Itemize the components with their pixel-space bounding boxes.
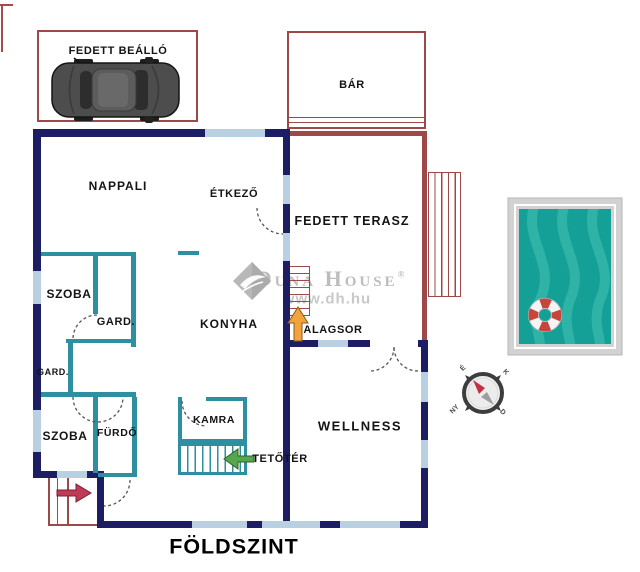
room1-door-arc [73,315,97,339]
wellness-right-wall [421,468,428,528]
wellness-door-arc [394,347,418,371]
floor-plan: Duna House® www.dh.hu [0,0,640,572]
wall-bottom [97,521,192,528]
room1-label: SZOBA [47,287,92,301]
compass-needle-south [481,392,494,405]
compass-icon [464,374,502,412]
page-title: FÖLDSZINT [169,535,299,560]
wall-bottom [320,521,340,528]
exterior-stairs [428,172,461,297]
kitchen-label: KONYHA [200,317,258,331]
living-room-label: NAPPALI [89,179,148,193]
watermark-brand-text: Duna House [256,266,398,291]
entry-porch-rail [48,478,50,526]
pantry-wall [243,397,247,443]
kitchen-counter [178,251,199,255]
window [421,440,428,468]
watermark-brand: Duna House® [256,266,405,292]
basement-stairs [288,266,310,316]
entry-porch-edge [48,524,98,526]
wall-top [37,129,205,137]
bathroom-label: FÜRDŐ [97,427,137,439]
window [262,521,320,528]
interior-wall [41,252,136,256]
interior-wall [41,392,136,397]
wardrobe2-label: GARD. [37,367,69,377]
window [57,471,87,478]
carport-outline [37,30,198,122]
interior-wall [93,252,98,314]
wellness-top-wall [348,340,370,347]
interior-wall [66,339,136,343]
window [33,271,41,304]
bar-counter-line [289,122,424,123]
dining-room-label: ÉTKEZŐ [210,188,258,200]
bar-label: BÁR [339,79,365,91]
window [33,410,41,452]
entrance-door-arc [104,480,130,506]
dining-door-arc [257,208,283,234]
window [421,372,428,402]
lifebuoy-icon [529,299,562,332]
compass-north-label: É [459,364,467,372]
pantry-label: KAMRA [193,414,235,426]
wall-bottom [247,521,262,528]
wellness-top-wall [283,340,318,347]
wellness-door-arc [370,347,394,371]
window [205,129,265,137]
compass-south-label: D [498,408,507,417]
wellness-right-wall [421,340,428,372]
interior-wall [98,473,137,477]
wardrobe1-label: GARD. [97,316,135,328]
terrace-top-wall [287,131,427,136]
compass-east-label: K [501,368,510,377]
basement-label: ALAGSOR [303,324,362,336]
room2-label: SZOBA [43,429,88,443]
wall-right [283,261,290,521]
wellness-right-wall [421,402,428,440]
bar-counter-line [289,117,424,118]
wellness-label: WELLNESS [318,419,402,434]
entry-porch-step-line [57,478,58,524]
compass-west-label: NY [449,404,461,416]
terrace-right-wall [422,136,427,345]
pool-waves [532,200,605,358]
attic-label: TETŐTÉR [252,453,308,465]
wall-bottom-left [33,471,57,478]
attic-stairs [178,443,247,475]
window [283,233,290,261]
wall-left [33,129,41,271]
dining-door-leaf [283,204,290,233]
entry-porch-step-line [67,478,69,524]
window [283,175,290,204]
compass-needle-north [473,380,485,394]
registered-mark: ® [398,270,405,280]
window [192,521,247,528]
edge-mark [1,4,3,52]
wall-left [33,304,41,410]
bathroom-door-arc [98,397,123,422]
window [340,521,400,528]
pool [508,198,622,358]
pantry-wall [178,397,182,443]
interior-wall [131,252,136,347]
carport-label: FEDETT BEÁLLÓ [69,45,168,57]
window [318,340,348,347]
terrace-label: FEDETT TERASZ [294,214,409,228]
entrance-arrow-icon [57,484,91,502]
pantry-wall [206,397,247,401]
wall-right [283,129,290,175]
